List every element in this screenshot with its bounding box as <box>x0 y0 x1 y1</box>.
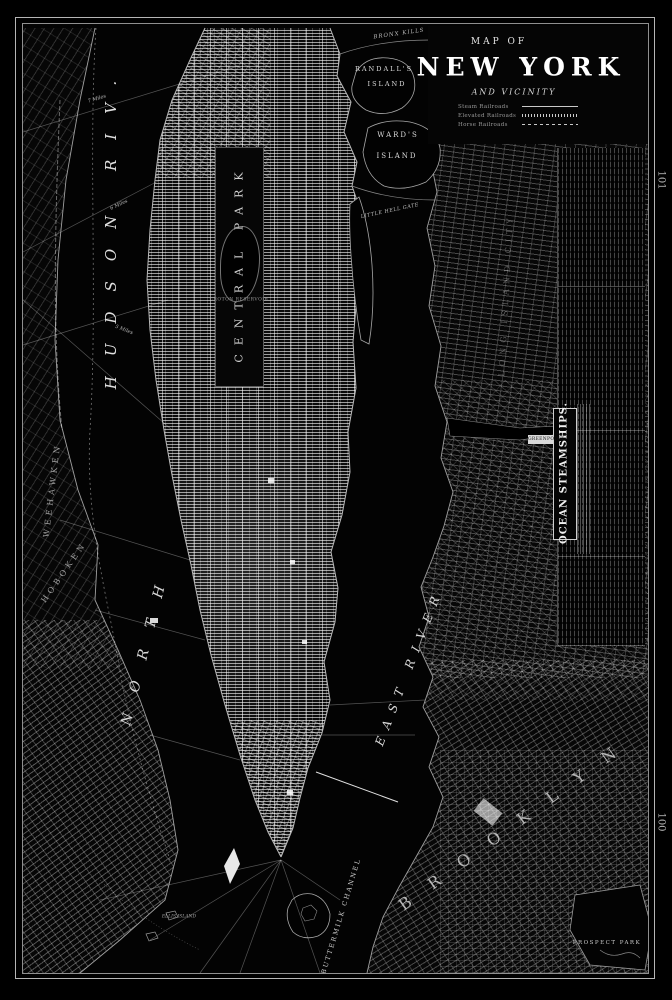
compass-needle <box>224 848 240 884</box>
wards-island-label-1: WARD'S <box>377 131 419 139</box>
map-plate: OCEAN STEAMSHIPS. GREENPOINT MAP OF NEW … <box>0 0 672 1000</box>
legend-label: Steam Railroads <box>458 104 522 110</box>
legend-label: Horse Railroads <box>458 122 522 128</box>
margin-bottom <box>0 973 672 1000</box>
margin-top <box>0 0 672 24</box>
map-legend: Steam Railroads Elevated Railroads Horse… <box>458 102 588 129</box>
randalls-island-label-2: ISLAND <box>368 80 407 88</box>
legend-row-horse: Horse Railroads <box>458 120 588 129</box>
greenpoint-banner: GREENPOINT <box>528 435 553 444</box>
page-title: NEW YORK <box>417 53 626 82</box>
title-subtitle: AND VICINITY <box>472 88 557 97</box>
manhattan-west-shoreline <box>147 28 281 857</box>
ferry-routes <box>23 66 425 973</box>
title-kicker: MAP OF <box>471 37 527 47</box>
park-square-speck <box>290 560 295 564</box>
manhattan-east-shoreline <box>281 28 362 857</box>
legend-hatched-line <box>522 114 578 117</box>
ocean-steamships-label: OCEAN STEAMSHIPS. <box>559 402 570 544</box>
prospect-park-label: PROSPECT PARK <box>573 940 641 946</box>
park-square-speck <box>302 640 307 644</box>
governors-island-shape <box>287 894 330 938</box>
legend-dashed-line <box>522 124 578 126</box>
legend-row-elevated: Elevated Railroads <box>458 111 588 120</box>
croton-reservoir-label: CROTON RESERVOIR <box>210 298 269 303</box>
legend-solid-line <box>522 106 578 108</box>
park-square-speck <box>268 478 274 483</box>
hudson-river-label: HUDSON RIV. <box>102 61 120 389</box>
margin-right <box>648 0 672 1000</box>
index-divider <box>558 286 645 287</box>
jersey-railroad-line <box>55 100 62 430</box>
steamship-list-texture <box>577 404 592 554</box>
legend-label: Elevated Railroads <box>458 113 522 119</box>
legend-row-steam: Steam Railroads <box>458 102 588 111</box>
wards-island-label-2: ISLAND <box>376 152 417 160</box>
street-index-panel <box>557 148 645 646</box>
ellis-island-label: ELLIS ISLAND <box>162 915 196 920</box>
index-divider <box>558 556 645 557</box>
folio-number-bottom: 100 <box>656 812 667 831</box>
folio-number-top: 101 <box>656 170 667 189</box>
randalls-island-label-1: RANDALL'S <box>355 65 413 73</box>
city-hall-park-speck <box>287 790 293 795</box>
central-park-label: CENTRAL PARK <box>233 163 246 362</box>
margin-left <box>0 0 23 1000</box>
brooklyn-bridge-line <box>316 772 398 802</box>
